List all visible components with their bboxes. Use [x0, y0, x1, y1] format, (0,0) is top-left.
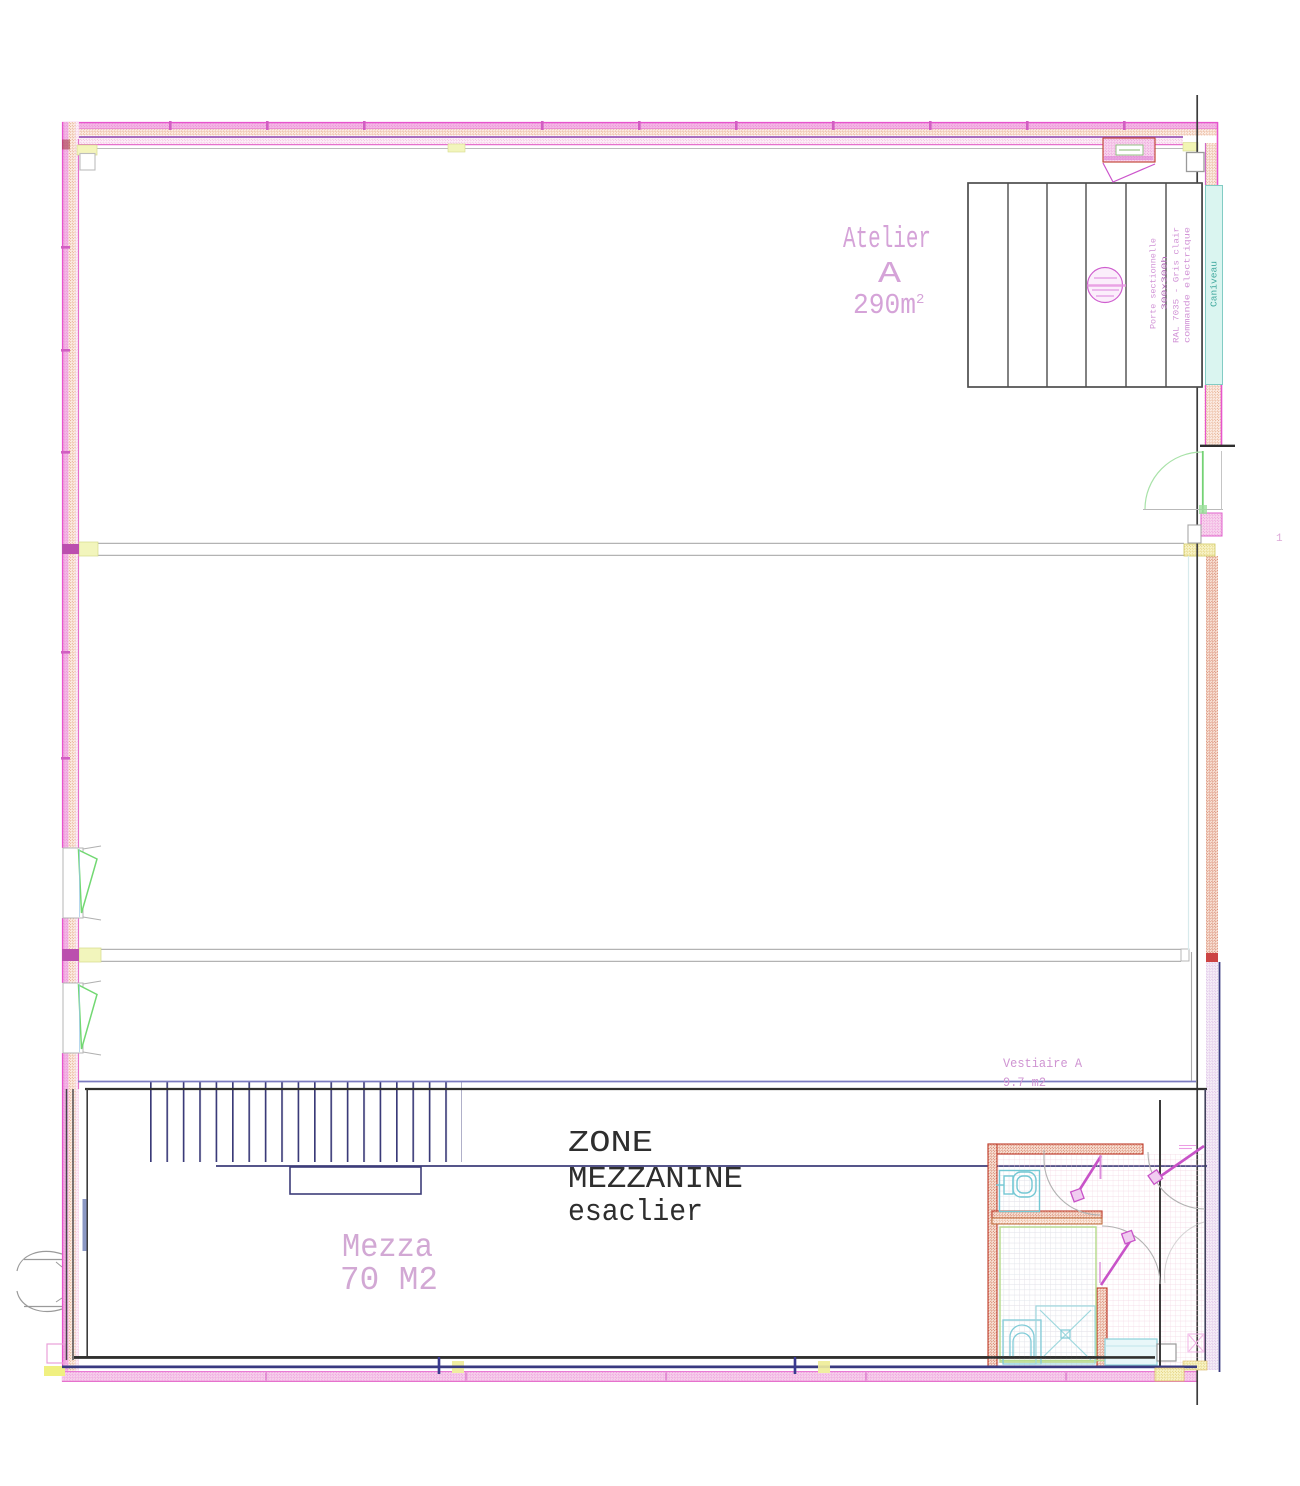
svg-text:Caniveau: Caniveau	[1210, 261, 1220, 307]
svg-text:290m: 290m	[853, 289, 916, 322]
svg-text:ZONE: ZONE	[568, 1126, 653, 1161]
svg-text:9.7 m2: 9.7 m2	[1003, 1076, 1046, 1090]
svg-text:300x300h: 300x300h	[1162, 256, 1170, 310]
svg-text:commande electrique: commande electrique	[1184, 227, 1193, 343]
svg-text:2: 2	[916, 292, 924, 308]
svg-text:Mezza: Mezza	[342, 1229, 433, 1266]
svg-text:Porte sectionnelle: Porte sectionnelle	[1150, 238, 1159, 329]
svg-text:70 M2: 70 M2	[340, 1262, 438, 1299]
svg-text:A: A	[878, 257, 901, 292]
svg-text:RAL 7035 - Gris clair: RAL 7035 - Gris clair	[1173, 227, 1182, 343]
svg-text:1: 1	[1276, 533, 1283, 545]
svg-text:Vestiaire A: Vestiaire A	[1003, 1057, 1082, 1071]
svg-text:MEZZANINE: MEZZANINE	[568, 1162, 743, 1197]
svg-text:esaclier: esaclier	[568, 1195, 703, 1230]
svg-text:Atelier: Atelier	[843, 222, 931, 257]
